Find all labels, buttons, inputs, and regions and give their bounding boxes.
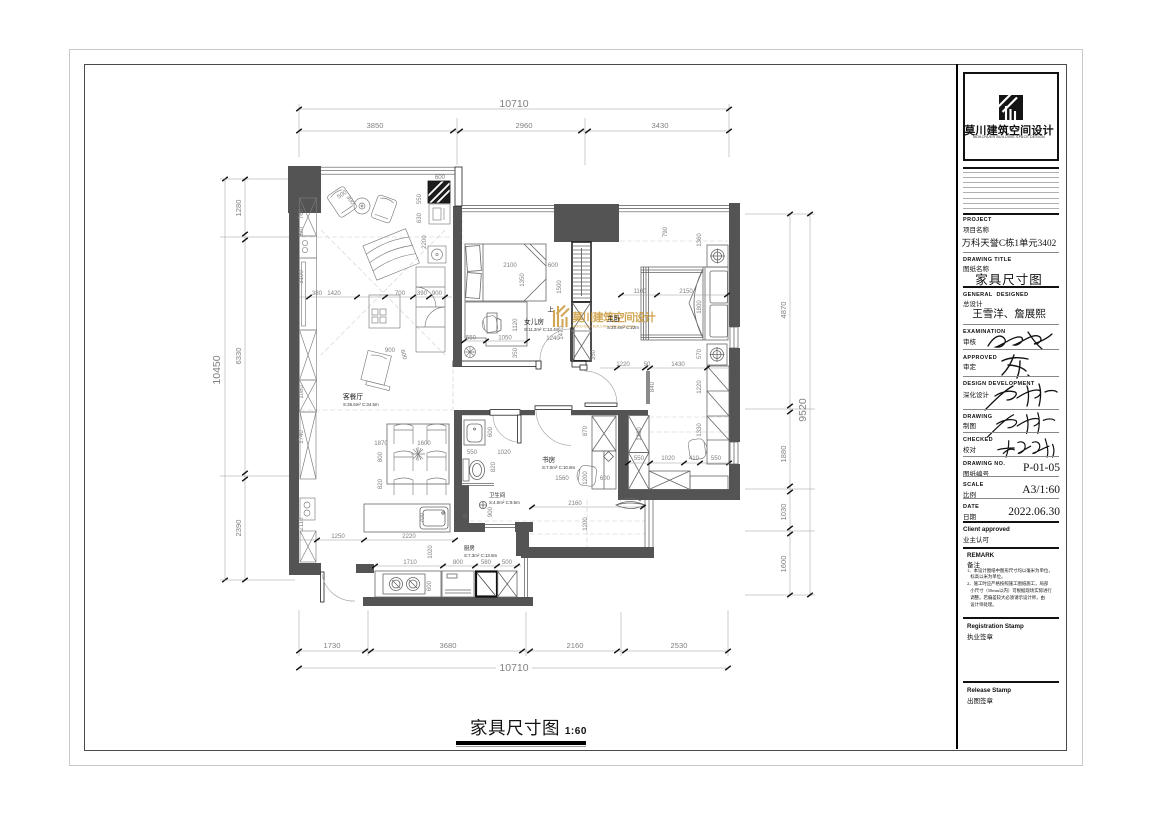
svg-text:1420: 1420 — [327, 290, 341, 297]
svg-text:600: 600 — [548, 262, 559, 269]
svg-text:820: 820 — [490, 461, 497, 472]
svg-text:410: 410 — [689, 455, 700, 462]
svg-text:S:7.0m² C:10.8m: S:7.0m² C:10.8m — [542, 465, 576, 470]
svg-text:1020: 1020 — [661, 455, 675, 462]
svg-text:1360: 1360 — [696, 233, 703, 247]
svg-text:1470: 1470 — [558, 326, 565, 340]
svg-text:10710: 10710 — [499, 662, 528, 674]
svg-text:1330: 1330 — [696, 423, 703, 437]
svg-text:1330: 1330 — [636, 427, 643, 441]
svg-text:350: 350 — [512, 347, 519, 358]
svg-text:1220: 1220 — [696, 380, 703, 394]
svg-text:1500: 1500 — [556, 280, 563, 294]
svg-text:2160: 2160 — [568, 500, 582, 507]
svg-text:500: 500 — [502, 559, 513, 566]
svg-text:3100: 3100 — [298, 270, 305, 284]
svg-text:10710: 10710 — [499, 98, 528, 110]
svg-text:1020: 1020 — [427, 545, 434, 559]
svg-text:1200: 1200 — [582, 517, 589, 531]
svg-text:2200: 2200 — [421, 235, 428, 249]
svg-text:2100: 2100 — [503, 262, 517, 269]
svg-text:600: 600 — [426, 580, 433, 591]
svg-text:厨房: 厨房 — [464, 544, 475, 552]
svg-text:760: 760 — [298, 208, 305, 219]
svg-text:700: 700 — [395, 290, 406, 297]
svg-text:1430: 1430 — [671, 361, 685, 368]
svg-text:10450: 10450 — [211, 355, 223, 384]
svg-text:600: 600 — [600, 475, 611, 482]
svg-text:1800: 1800 — [696, 300, 703, 314]
svg-text:2390: 2390 — [234, 520, 243, 537]
svg-text:380: 380 — [312, 290, 323, 297]
svg-text:4870: 4870 — [779, 302, 788, 319]
svg-text:1280: 1280 — [234, 200, 243, 217]
svg-text:870: 870 — [582, 425, 589, 436]
svg-text:700: 700 — [419, 512, 426, 523]
svg-text:600: 600 — [435, 174, 446, 181]
svg-text:S:11.2m² C:13.4m: S:11.2m² C:13.4m — [524, 327, 560, 332]
svg-text:840: 840 — [649, 381, 656, 392]
svg-text:1870: 1870 — [374, 440, 388, 447]
svg-text:550: 550 — [634, 455, 645, 462]
svg-text:S:20.4m² C:22m: S:20.4m² C:22m — [607, 325, 639, 330]
svg-text:550: 550 — [416, 193, 423, 204]
svg-text:600: 600 — [487, 426, 494, 437]
svg-text:2150: 2150 — [679, 288, 693, 295]
svg-text:S:7.3m² C:13.8m: S:7.3m² C:13.8m — [464, 553, 498, 558]
svg-text:600: 600 — [399, 349, 409, 361]
svg-text:2160: 2160 — [567, 641, 584, 650]
svg-text:1740: 1740 — [298, 430, 305, 444]
svg-text:1030: 1030 — [779, 504, 788, 521]
svg-text:3850: 3850 — [367, 121, 384, 130]
svg-text:2110: 2110 — [298, 517, 305, 531]
svg-text:1710: 1710 — [403, 559, 417, 566]
svg-text:1600: 1600 — [417, 440, 431, 447]
svg-text:1100: 1100 — [633, 288, 647, 295]
svg-text:S:36.6m² C:34.5m: S:36.6m² C:34.5m — [343, 402, 379, 407]
svg-text:3680: 3680 — [440, 641, 457, 650]
svg-text:320: 320 — [298, 226, 305, 237]
svg-text:2530: 2530 — [671, 641, 688, 650]
svg-text:1880: 1880 — [779, 446, 788, 463]
svg-text:1560: 1560 — [555, 475, 569, 482]
svg-text:570: 570 — [696, 348, 703, 359]
svg-text:客餐厅: 客餐厅 — [343, 392, 363, 401]
svg-text:1600: 1600 — [779, 556, 788, 573]
svg-text:1350: 1350 — [519, 273, 526, 287]
svg-text:主卧: 主卧 — [607, 314, 621, 323]
svg-text:790: 790 — [662, 226, 669, 237]
svg-text:2220: 2220 — [402, 533, 416, 540]
svg-text:2960: 2960 — [516, 121, 533, 130]
svg-text:1250: 1250 — [331, 533, 345, 540]
svg-text:6330: 6330 — [234, 348, 243, 365]
svg-text:1020: 1020 — [497, 449, 511, 456]
svg-text:S:4.0m² C:9.5m: S:4.0m² C:9.5m — [489, 500, 520, 505]
svg-text:550: 550 — [711, 455, 722, 462]
svg-text:卫生间: 卫生间 — [489, 491, 505, 499]
svg-text:女儿房: 女儿房 — [524, 317, 544, 326]
svg-text:800: 800 — [377, 451, 384, 462]
svg-text:1200: 1200 — [582, 471, 589, 485]
svg-text:550: 550 — [466, 335, 477, 342]
svg-text:390: 390 — [417, 290, 428, 297]
svg-text:550: 550 — [467, 449, 478, 456]
svg-text:1050: 1050 — [498, 335, 512, 342]
svg-text:900: 900 — [487, 506, 494, 517]
svg-text:书房: 书房 — [542, 455, 556, 464]
svg-text:350: 350 — [590, 349, 597, 360]
svg-text:1080: 1080 — [298, 385, 305, 399]
svg-text:800: 800 — [453, 559, 464, 566]
svg-text:1120: 1120 — [512, 318, 519, 332]
svg-text:3430: 3430 — [652, 121, 669, 130]
svg-text:9520: 9520 — [797, 398, 809, 422]
svg-text:820: 820 — [377, 478, 384, 489]
svg-text:900: 900 — [432, 290, 443, 297]
svg-text:900: 900 — [385, 347, 396, 354]
svg-text:630: 630 — [416, 212, 423, 223]
svg-text:1730: 1730 — [324, 641, 341, 650]
svg-text:580: 580 — [481, 559, 492, 566]
svg-text:300: 300 — [344, 194, 356, 207]
